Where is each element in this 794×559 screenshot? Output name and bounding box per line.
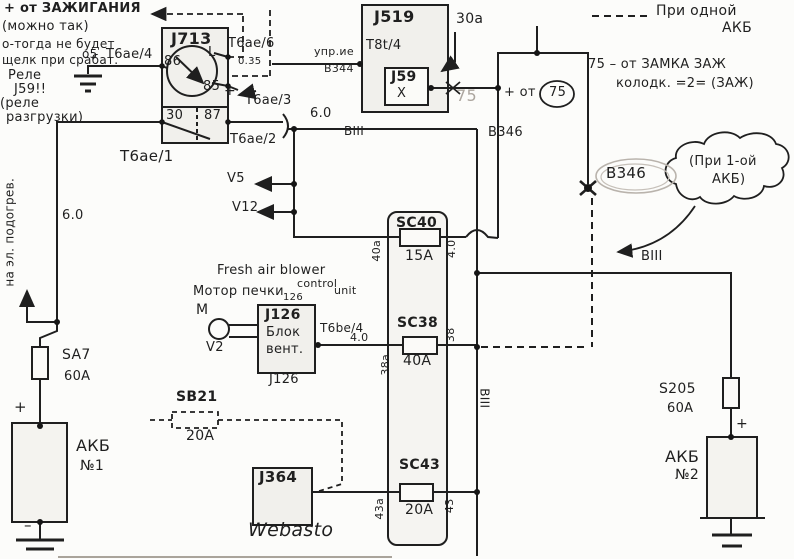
label-upr: упр.ие (314, 46, 354, 58)
note-75-2: колодк. =2= (ЗАЖ) (616, 77, 754, 91)
gauge-6-mid: 6.0 (310, 107, 332, 121)
label-heater-feed: на эл. подогрев. (4, 144, 17, 320)
wire-biii-right: ВIII (641, 250, 663, 264)
fuse-sc38-amps: 40А (403, 354, 431, 369)
fuse-sc40-left: 40а (371, 233, 383, 269)
label-126-above: 126 (283, 293, 303, 304)
label-motor-v2: V2 (206, 341, 224, 355)
note-fresh-air-1: Fresh air blower (217, 264, 325, 278)
label-t6ae6: Т6ае/6 (228, 37, 275, 51)
bcm-j519-title: J519 (374, 9, 415, 26)
label-plus-ot: + от (504, 86, 536, 100)
terminal-87: 87 (204, 109, 221, 123)
ground-symbol-left (74, 66, 162, 91)
fuse-sc40-name: SC40 (396, 216, 437, 231)
note-razgruzki-2: разгрузки) (6, 111, 83, 125)
note-fresh-air-2: control (297, 278, 337, 290)
battery-1-minus: – (24, 518, 32, 534)
label-motor-m: М (196, 303, 208, 318)
fuse-sb21-name: SB21 (176, 390, 217, 405)
wire-biii (477, 129, 731, 556)
label-j126-below: J126 (269, 373, 299, 387)
note-ignition-6: J59!! (14, 83, 46, 97)
note-ignition-1: + от ЗАЖИГАНИЯ (4, 2, 141, 16)
fuse-sb21-symbol (150, 412, 342, 492)
note-ignition-3: о-тогда не будет (2, 38, 115, 51)
label-gauge-035: 0.35 (238, 57, 261, 68)
fuse-sa7-amps: 60А (64, 370, 90, 384)
battery-2-plus: + (736, 417, 748, 432)
fuse-sc38-left: 38а (380, 347, 392, 383)
fuse-sa7-name: SA7 (62, 348, 91, 363)
label-t6ae3: Т6ае/3 (245, 94, 292, 108)
fuse-sc43-name: SC43 (399, 458, 440, 473)
fuse-sb21-amps: 20А (186, 429, 214, 444)
battery-2-symbol (700, 437, 765, 546)
wire-biii-mid: ВIII (344, 125, 364, 138)
label-30a: 30а (456, 12, 483, 27)
label-t6ae3-plus: + (224, 84, 236, 99)
label-vent: вент. (266, 343, 303, 357)
legend-one-battery-1: При одной (656, 4, 737, 19)
note-motor-pechki: Мотор печки (193, 285, 284, 299)
terminal-85: 85 (203, 80, 220, 94)
terminal-L: L (208, 46, 216, 60)
label-blok: Блок (266, 326, 300, 340)
battery-2-name: АКБ (665, 449, 699, 466)
fuse-sc40-amps: 15А (405, 249, 433, 264)
bcm-j519-symbol (272, 5, 448, 112)
label-t8t4: Т8t/4 (366, 39, 401, 53)
battery-1-name: АКБ (76, 438, 110, 455)
note-fresh-air-3: unit (334, 285, 357, 297)
note-razgruzki-1: (реле (0, 97, 39, 111)
fuse-s205-symbol (723, 378, 739, 408)
fuse-s205-name: S205 (659, 382, 696, 397)
cloud-text-2: АКБ) (712, 173, 745, 187)
legend-one-battery-2: АКБ (722, 21, 752, 36)
fuse-sc40-symbol (400, 229, 440, 246)
label-v346-tag: В346 (606, 166, 646, 182)
fuse-s205-amps: 60А (667, 402, 693, 416)
schematic-page: + от ЗАЖИГАНИЯ (можно так) о-тогда не бу… (0, 0, 794, 559)
battery-1-plus: + (14, 400, 27, 416)
label-t6be4: Т6bе/4 (320, 322, 363, 335)
relay-j713-title: J713 (171, 31, 212, 48)
note-ignition-4: щелк при срабат. (2, 54, 118, 67)
label-75-pencil: 75 (456, 88, 477, 105)
fuse-sc38-name: SC38 (397, 316, 438, 331)
terminal-30: 30 (166, 109, 183, 123)
battery-2-num: №2 (675, 468, 699, 483)
label-v12: V12 (232, 201, 258, 215)
wire-biii-rot: ВIII (478, 378, 491, 418)
label-v5: V5 (227, 172, 245, 186)
fuse-sc38-right: 38 (445, 317, 457, 353)
cloud-text-1: (При 1-ой (689, 155, 757, 169)
battery-1-symbol (12, 423, 67, 549)
fuse-sc40-right: 4.0 (446, 231, 458, 267)
note-ignition-2: (можно так) (2, 20, 89, 34)
label-j59-x: X (397, 87, 406, 101)
fuse-sc43-right: 43 (444, 488, 456, 524)
fuse-sa7-symbol (32, 347, 48, 379)
battery-1-num: №1 (80, 459, 104, 474)
note-ignition-5: Реле (8, 69, 41, 83)
webasto-j364-title: J364 (259, 470, 297, 486)
label-75-circled: 75 (549, 86, 566, 100)
label-webasto: Webasto (248, 521, 333, 541)
label-t6ae2: Т6ае/2 (230, 133, 277, 147)
label-v346-wire: В346 (488, 126, 523, 140)
label-ground-o5: о5 (82, 48, 98, 61)
note-75-1: 75 – от ЗАМКА ЗАЖ (588, 58, 726, 72)
wire-30-battery1 (27, 122, 162, 426)
label-v344: В344 (324, 63, 354, 75)
fuse-sc43-amps: 20А (405, 503, 433, 518)
label-t6ae4: Т6ае/4 (106, 48, 153, 62)
terminal-86: 86 (164, 55, 181, 69)
label-t6ae1: Т6ае/1 (120, 149, 174, 165)
gauge-6-left: 6.0 (62, 209, 84, 223)
relay-j59-title: J59 (391, 70, 417, 85)
fuse-sc43-left: 43а (374, 491, 386, 527)
blower-j126-title: J126 (265, 308, 301, 323)
